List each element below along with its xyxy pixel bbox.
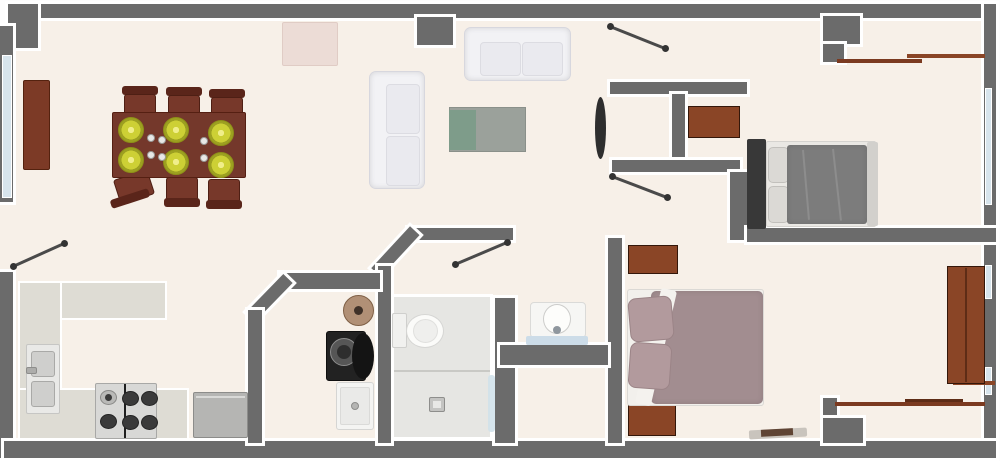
door-swing-kitchen-dot-a — [10, 263, 17, 270]
kitchen-faucet — [26, 367, 37, 374]
wc-sink-faucet — [553, 326, 561, 334]
closet-rod-top-2 — [907, 54, 985, 58]
washing-machine-open-door — [352, 333, 374, 379]
closet-curved-door — [595, 97, 606, 159]
sofa-top-cushion-2 — [522, 42, 563, 76]
cup-2 — [158, 136, 166, 144]
wall-closet-pier-base — [823, 418, 863, 443]
toilet-seat — [413, 319, 438, 343]
bed1-pillow-2 — [768, 186, 789, 223]
floor-plan — [0, 0, 1000, 461]
plate-6 — [208, 152, 234, 178]
wall-laundry-left — [248, 310, 262, 443]
cup-3 — [200, 137, 208, 145]
bed2-pillow-1 — [627, 295, 675, 343]
sofa-top-cushion-1 — [480, 42, 521, 76]
door-swing-kitchen-dot-b — [61, 240, 68, 247]
door-swing-bathroom-dot-b — [504, 239, 511, 246]
sofa-left-cushion-2 — [386, 136, 420, 186]
bed1-blanket — [787, 145, 867, 224]
wall-bathroom-left — [378, 266, 391, 443]
closet-rod-bottom-1 — [835, 402, 985, 406]
wall-top-pier — [417, 17, 453, 45]
wall-bottom — [4, 441, 996, 458]
wall-bedroom2-left — [608, 238, 622, 443]
utility-sink-drain — [351, 402, 359, 410]
laundry-round-stool-center — [354, 306, 363, 315]
stove-burner-2 — [122, 391, 139, 406]
bed1-pillow-1 — [768, 147, 789, 183]
bedroom2-wardrobe-line — [965, 268, 967, 382]
wall-bathroom-top — [408, 228, 513, 240]
door-swing-bedroom2-dot-a — [609, 173, 616, 180]
stove-burner-6 — [141, 415, 158, 430]
dining-chair-back-6 — [206, 200, 242, 209]
dishwasher — [193, 392, 248, 438]
window-right-middle — [985, 265, 992, 299]
coffee-table-green-panel — [449, 110, 476, 150]
dining-chair-back-5 — [164, 198, 200, 207]
shower-drain-inner — [433, 401, 441, 408]
plate-4 — [118, 147, 144, 173]
door-swing-bedroom1-dot-b — [662, 45, 669, 52]
door-swing-bathroom-dot-a — [452, 261, 459, 268]
bed2-pillow-2 — [627, 342, 672, 391]
sideboard — [23, 80, 50, 170]
plate-5 — [163, 149, 189, 175]
bathroom-tile-line — [393, 370, 490, 372]
plate-1 — [118, 117, 144, 143]
wall-wc-vertical — [495, 298, 515, 443]
stove-burner-1-center — [105, 394, 112, 401]
window-right-top — [985, 88, 992, 205]
wc-bath-mat — [526, 336, 588, 345]
bed1-footboard — [867, 142, 878, 226]
dishwasher-highlight — [196, 396, 245, 398]
dining-rug — [282, 22, 338, 66]
wall-top-right-notch-a — [823, 16, 860, 44]
bedroom1-dresser — [688, 106, 740, 138]
closet-rod-top-1 — [837, 59, 922, 63]
door-swing-bedroom1-dot-a — [607, 23, 614, 30]
closet-rod-bottom-2 — [905, 399, 963, 402]
wall-kitchen-top — [280, 273, 380, 289]
door-swing-bedroom2-dot-b — [664, 194, 671, 201]
cup-1 — [147, 134, 155, 142]
cup-4 — [147, 151, 155, 159]
washing-machine-drum-inner — [337, 345, 351, 359]
bathroom-tile-floor — [393, 297, 490, 437]
wall-closet-right — [672, 94, 685, 160]
bed1-headboard — [747, 139, 766, 229]
stove-burner-5 — [122, 415, 139, 430]
wall-bedroom1-left — [730, 172, 747, 240]
wall-hall-bottom — [612, 160, 740, 172]
shower-glass-strip — [488, 375, 495, 432]
wall-left-lower — [0, 272, 13, 458]
plate-3 — [208, 120, 234, 146]
plate-2 — [163, 117, 189, 143]
stove-burner-3 — [141, 391, 158, 406]
cup-6 — [200, 154, 208, 162]
cup-5 — [158, 153, 166, 161]
wall-hall-top — [610, 82, 747, 94]
bedroom2-nightstand-2 — [628, 405, 676, 436]
kitchen-sink-basin-2 — [31, 381, 55, 407]
window-left — [2, 55, 12, 198]
bedroom2-nightstand-1 — [628, 245, 678, 274]
wall-wc-horizontal — [500, 345, 608, 365]
sofa-left-cushion-1 — [386, 84, 420, 134]
stove-burner-4 — [100, 414, 117, 429]
wall-bedrooms-divider — [747, 228, 996, 242]
toilet-tank — [392, 313, 407, 348]
left-door-gap — [0, 202, 13, 272]
